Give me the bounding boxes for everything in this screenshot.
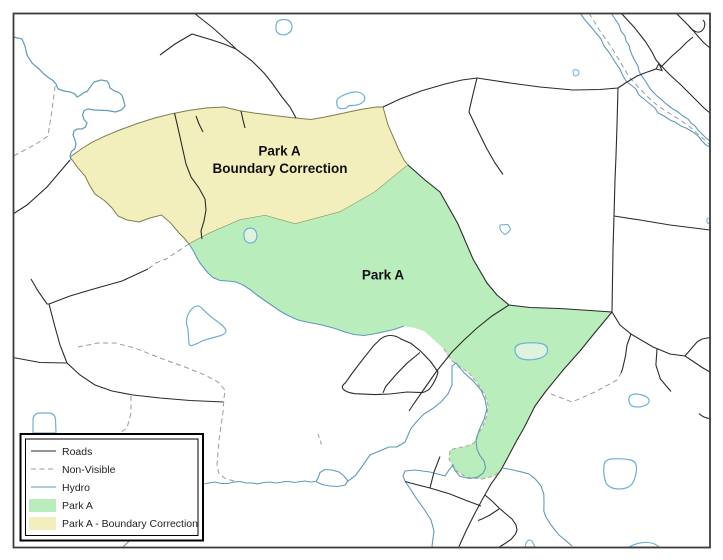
svg-text:Park A: Park A xyxy=(362,268,405,283)
svg-text:Park A - Boundary Correction: Park A - Boundary Correction xyxy=(62,518,198,530)
svg-text:Boundary Correction: Boundary Correction xyxy=(212,161,347,176)
svg-text:Roads: Roads xyxy=(62,446,92,458)
svg-text:Park A: Park A xyxy=(258,143,301,158)
svg-text:Hydro: Hydro xyxy=(62,482,90,494)
svg-text:Non-Visible: Non-Visible xyxy=(62,464,116,476)
svg-text:Park A: Park A xyxy=(62,500,93,512)
